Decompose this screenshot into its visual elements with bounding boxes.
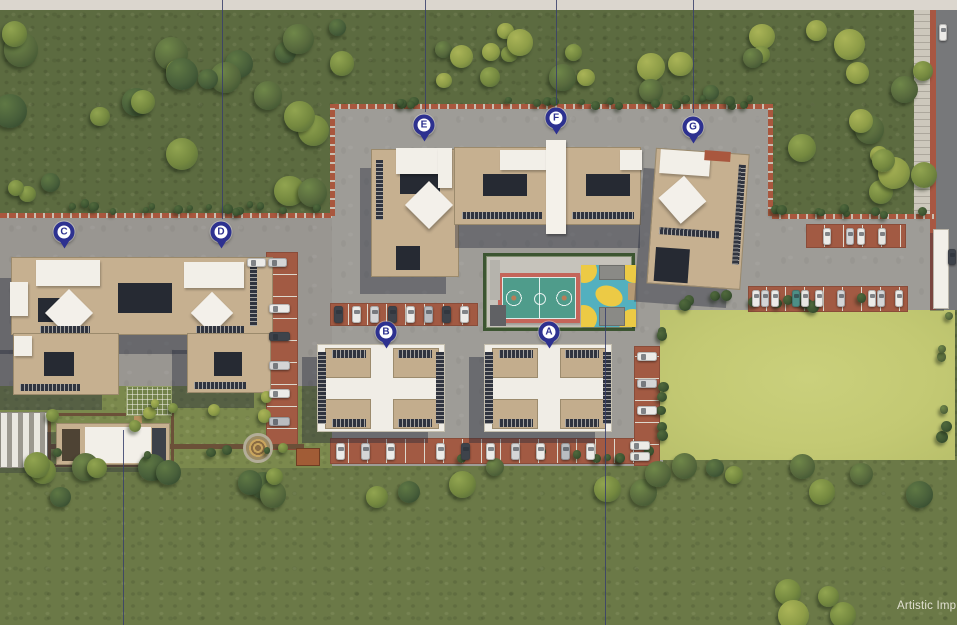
building-c-part — [184, 262, 244, 288]
bush — [143, 407, 156, 420]
bush — [89, 202, 98, 211]
car — [460, 306, 469, 323]
tree — [725, 466, 743, 484]
bush — [658, 382, 668, 392]
building-f-part — [462, 212, 542, 219]
building-d-wing-part — [214, 352, 242, 376]
bush — [278, 443, 288, 453]
car — [561, 443, 570, 460]
tree — [846, 62, 868, 84]
map-pin-e[interactable]: E — [414, 115, 435, 136]
tree — [788, 134, 816, 162]
map-pin-g[interactable]: G — [683, 117, 704, 138]
building-f-part — [500, 150, 548, 170]
tree — [436, 73, 451, 88]
car-windshield — [839, 294, 844, 298]
parking-row — [806, 224, 906, 248]
leader-line — [556, 0, 557, 104]
tree — [8, 180, 24, 196]
building-f-part — [586, 174, 630, 196]
tree — [565, 44, 582, 61]
building-d-wing-part — [194, 382, 246, 389]
building-c-wing-part — [14, 336, 32, 356]
play-surface-pattern — [581, 305, 597, 327]
boundary-wall — [768, 104, 773, 216]
car — [336, 443, 345, 460]
bush — [679, 299, 691, 311]
pin-label: B — [382, 326, 389, 339]
tree — [166, 138, 198, 170]
car — [637, 406, 657, 415]
tree — [87, 458, 107, 478]
tree — [482, 43, 500, 61]
tree — [672, 453, 698, 479]
tree — [577, 69, 595, 87]
leader-line — [123, 430, 124, 625]
tree — [50, 487, 70, 507]
car — [269, 389, 290, 398]
play-surface-pattern — [592, 282, 625, 310]
building-a-part — [565, 350, 599, 358]
car-windshield — [641, 381, 646, 387]
bush — [232, 208, 240, 216]
bush — [313, 204, 321, 212]
car-windshield — [941, 28, 946, 32]
pin-label: E — [421, 119, 428, 132]
car-windshield — [273, 391, 278, 397]
car — [815, 290, 823, 307]
car-windshield — [634, 443, 639, 449]
car-windshield — [588, 447, 594, 451]
basketball-court — [498, 273, 580, 323]
tree — [283, 24, 313, 54]
car-windshield — [372, 310, 378, 314]
tree — [480, 67, 500, 87]
top-margin-strip — [0, 0, 957, 10]
car — [486, 443, 495, 460]
car-windshield — [363, 447, 369, 451]
car — [269, 361, 290, 370]
bush — [941, 421, 952, 432]
tree — [913, 61, 933, 81]
map-pin-f[interactable]: F — [546, 108, 567, 129]
tree — [850, 463, 872, 485]
play-equipment-pad — [599, 307, 625, 326]
bush — [591, 101, 600, 110]
utility-pad — [490, 260, 500, 300]
building-c-wing-part — [20, 384, 80, 391]
play-equipment-pad — [599, 265, 625, 280]
tree — [645, 461, 670, 486]
bush — [857, 293, 867, 303]
tree — [238, 470, 262, 494]
site-plan: Artistic Imp ABCDEFG — [0, 0, 957, 625]
car — [268, 258, 287, 267]
car — [823, 228, 831, 245]
tree — [872, 149, 895, 172]
car-windshield — [763, 294, 768, 298]
bush — [657, 330, 668, 341]
tree — [668, 52, 692, 76]
building-a-part — [485, 352, 493, 424]
car-windshield — [634, 454, 639, 460]
car — [877, 290, 885, 307]
tree — [790, 454, 815, 479]
building-c-part — [36, 260, 100, 286]
bush — [222, 445, 232, 455]
car-windshield — [563, 447, 569, 451]
building-c-wing-part — [44, 352, 74, 376]
tree — [131, 90, 155, 114]
bush — [129, 420, 141, 432]
entrance-canopy — [934, 230, 948, 308]
tree — [166, 58, 198, 90]
car — [361, 443, 370, 460]
bush — [168, 403, 178, 413]
car-windshield — [388, 447, 394, 451]
tree — [329, 19, 346, 36]
car-windshield — [273, 419, 278, 425]
map-pin-d[interactable]: D — [211, 222, 232, 243]
roof-detail — [704, 150, 731, 162]
building-e-part — [376, 160, 383, 220]
building-a-part — [499, 419, 533, 427]
utility-shed — [296, 448, 320, 466]
bush — [945, 312, 953, 320]
car — [442, 306, 451, 323]
car-windshield — [803, 294, 808, 298]
car-windshield — [336, 310, 342, 314]
boundary-wall — [330, 104, 335, 216]
car-windshield — [859, 232, 864, 236]
car — [801, 290, 809, 307]
pin-label: D — [217, 226, 224, 239]
play-surface-pattern — [581, 265, 597, 283]
pin-label: C — [60, 226, 67, 239]
tree — [486, 458, 504, 476]
car — [630, 441, 650, 450]
bush — [721, 290, 732, 301]
car-windshield — [408, 310, 414, 314]
bush — [725, 96, 735, 106]
car — [630, 452, 650, 461]
building-c-part — [40, 326, 90, 333]
car — [352, 306, 361, 323]
car-windshield — [794, 294, 799, 298]
car — [878, 228, 886, 245]
boundary-wall — [772, 214, 936, 219]
car-windshield — [950, 253, 955, 257]
car-windshield — [641, 354, 646, 360]
bush — [871, 207, 880, 216]
car — [436, 443, 445, 460]
tree — [743, 48, 763, 68]
tree — [0, 94, 27, 128]
car-windshield — [513, 447, 519, 451]
car — [792, 290, 800, 307]
car — [388, 306, 397, 323]
utility-pad — [490, 305, 506, 326]
building-f-part — [483, 174, 527, 196]
bush — [81, 199, 89, 207]
car — [857, 228, 865, 245]
building-c-part — [10, 282, 28, 316]
car — [837, 290, 845, 307]
bush — [940, 405, 949, 414]
tree — [298, 178, 327, 207]
tree — [906, 481, 933, 508]
car — [334, 306, 343, 323]
roof-detail — [654, 247, 690, 283]
leader-line — [425, 0, 426, 112]
car-windshield — [462, 310, 468, 314]
leader-line — [222, 0, 223, 219]
car — [752, 290, 760, 307]
bush — [777, 205, 787, 215]
car — [868, 290, 876, 307]
pin-label: G — [689, 121, 697, 134]
building-e-part — [438, 148, 452, 188]
bush — [279, 207, 286, 214]
car — [511, 443, 520, 460]
kids-play-area — [581, 265, 636, 327]
car-windshield — [251, 260, 256, 266]
car-windshield — [272, 260, 277, 266]
building-b-part — [318, 352, 326, 424]
car — [247, 258, 266, 267]
tree — [90, 107, 109, 126]
map-pin-b[interactable]: B — [376, 322, 397, 343]
map-pin-c[interactable]: C — [54, 222, 75, 243]
car-windshield — [817, 294, 822, 298]
tree — [834, 29, 865, 60]
building-a-part — [499, 350, 533, 358]
tree — [637, 53, 665, 81]
leader-line — [693, 0, 694, 113]
car — [269, 332, 290, 341]
bush — [840, 204, 849, 213]
pin-label: A — [545, 326, 552, 339]
car-windshield — [488, 447, 494, 451]
car — [536, 443, 545, 460]
car-windshield — [870, 294, 875, 298]
bush — [607, 97, 614, 104]
car-windshield — [273, 306, 278, 312]
car-windshield — [848, 232, 853, 236]
bush — [700, 95, 707, 102]
car — [771, 290, 779, 307]
bush — [187, 205, 193, 211]
bush — [656, 406, 665, 415]
bush — [740, 101, 748, 109]
tree — [849, 109, 873, 133]
car — [386, 443, 395, 460]
tree — [594, 476, 620, 502]
car-windshield — [354, 310, 360, 314]
tree — [156, 460, 181, 485]
building-b-part — [398, 419, 432, 427]
building-e-part — [396, 246, 420, 270]
car — [895, 290, 903, 307]
map-pin-a[interactable]: A — [539, 322, 560, 343]
sports-zone — [483, 253, 635, 331]
car-windshield — [273, 363, 278, 369]
tree — [749, 24, 774, 49]
bush — [53, 448, 62, 457]
open-lawn — [660, 310, 955, 460]
car-windshield — [897, 294, 902, 298]
car-windshield — [879, 294, 884, 298]
building-a-part — [565, 419, 599, 427]
car-windshield — [273, 334, 278, 340]
tree — [809, 479, 835, 505]
tree — [330, 51, 354, 75]
bush — [257, 202, 264, 209]
roof-detail — [659, 149, 711, 176]
car-windshield — [773, 294, 778, 298]
car-windshield — [880, 232, 885, 236]
building-g — [635, 136, 766, 304]
bush — [657, 430, 668, 441]
car — [637, 352, 657, 361]
car — [370, 306, 379, 323]
tree — [639, 79, 663, 103]
bush — [69, 203, 76, 210]
building-b-part — [436, 352, 444, 424]
car — [269, 304, 290, 313]
tree — [450, 45, 473, 68]
car-windshield — [754, 294, 759, 298]
tree — [284, 101, 315, 132]
tree — [254, 81, 282, 109]
bush — [710, 291, 720, 301]
building-c-part — [250, 266, 257, 326]
car — [461, 443, 470, 460]
car — [424, 306, 433, 323]
bush — [505, 97, 511, 103]
bush — [264, 447, 271, 454]
car — [406, 306, 415, 323]
tree — [41, 173, 60, 192]
leader-line — [605, 308, 606, 625]
building-b-part — [332, 419, 366, 427]
bush — [747, 95, 753, 101]
car-windshield — [438, 447, 444, 451]
bush — [110, 208, 116, 214]
building-b-part — [332, 350, 366, 358]
tree — [198, 69, 218, 89]
tree — [507, 29, 533, 55]
car — [939, 24, 947, 41]
car — [586, 443, 595, 460]
car — [846, 228, 854, 245]
car-windshield — [338, 447, 344, 451]
tree — [549, 64, 576, 91]
building-f-part — [546, 140, 566, 234]
car-windshield — [538, 447, 544, 451]
basketball-court-surface — [502, 277, 576, 319]
bush — [573, 450, 581, 458]
car-windshield — [825, 232, 830, 236]
bush — [397, 99, 404, 106]
car-windshield — [444, 310, 450, 314]
car — [948, 249, 956, 265]
tree — [818, 586, 839, 607]
building-f-part — [572, 212, 634, 219]
building-c-part — [196, 326, 244, 333]
bush — [818, 209, 824, 215]
building-b-part — [398, 350, 432, 358]
bush — [682, 95, 690, 103]
pin-label: F — [553, 112, 559, 125]
car-windshield — [390, 310, 396, 314]
watermark: Artistic Imp — [897, 600, 957, 612]
building-c-part — [118, 283, 172, 313]
bush — [937, 352, 946, 361]
tree — [806, 20, 828, 42]
tree — [398, 481, 420, 503]
car — [637, 379, 657, 388]
tree — [2, 21, 27, 46]
car-windshield — [463, 447, 469, 451]
bush — [615, 102, 623, 110]
tree — [366, 486, 388, 508]
car — [269, 417, 290, 426]
bush — [149, 203, 156, 210]
building-f-part — [620, 150, 642, 170]
bush — [206, 204, 212, 210]
bush — [247, 201, 254, 208]
car — [761, 290, 769, 307]
car-windshield — [641, 408, 646, 414]
car-windshield — [426, 310, 432, 314]
bush — [617, 455, 625, 463]
